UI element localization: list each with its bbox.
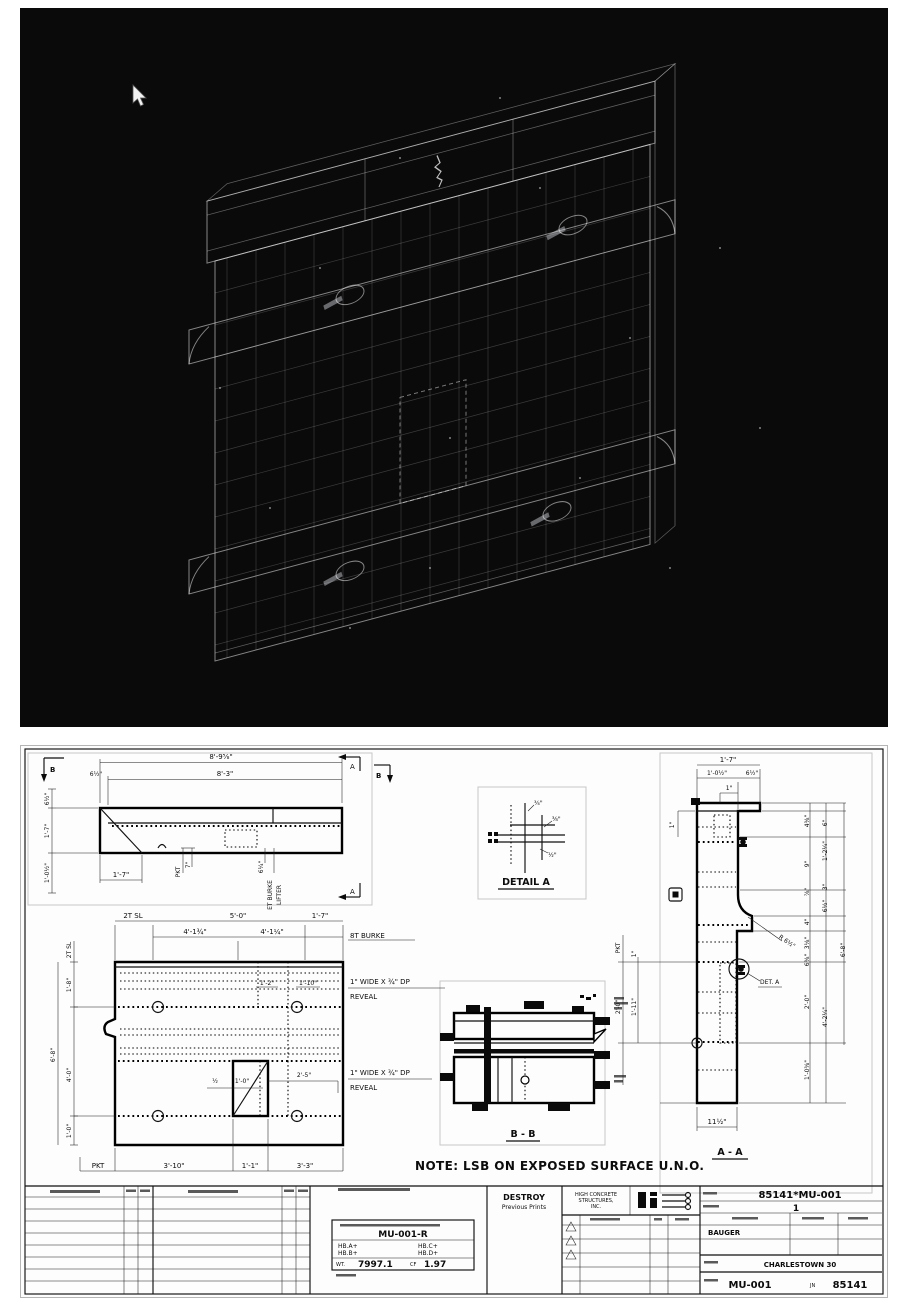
dim-label: ¾" [534,800,543,807]
dim-label: 4'-1¼" [260,928,283,936]
sheet-canvas: 8'-9⅝" 8'-3" 6½" 6½" 1'-7" 1'-0½" 1'-7" … [20,745,888,1298]
laterals-value: 1 [793,1204,799,1214]
hb-label: HB.D+ [418,1250,438,1257]
dim-label: 1'-7" [312,912,329,920]
svg-text:B: B [376,772,381,780]
dim-label: 1" [726,785,733,792]
lifter-label: ET BURKE [267,880,274,910]
dim-label: 6'-8" [50,1048,57,1062]
dim-label: 1'-2¼" [822,841,829,861]
dim-label: 8'-9⅝" [209,753,232,761]
dim-label: PKT [615,942,622,953]
job-number: 85141 [833,1280,868,1291]
viewport-background [20,8,888,727]
drawn-by: BAUGER [708,1229,741,1237]
dim-label: PKT [92,1162,105,1170]
dim-label: 1'-0½" [44,863,51,883]
reveal-label: 1" WIDE X ¾" DP [350,978,410,986]
weight-label: WT. [336,1262,345,1268]
dim-label: 6½" [90,771,103,778]
dim-label: 11½" [708,1118,727,1126]
view-title: B - B [510,1129,535,1140]
dim-label: 1'-7" [44,824,51,838]
dim-label: 4'-0" [66,1068,73,1082]
dim-label: 2'-0" [804,995,811,1009]
destroy-line1: DESTROY [503,1193,545,1202]
dim-label: 1'-7" [720,756,737,764]
dim-label: ½ [212,1078,218,1085]
project-name: CHARLESTOWN 30 [764,1261,837,1269]
view-title: A - A [717,1147,743,1158]
company-logo [638,1192,691,1210]
model-viewport[interactable] [20,8,888,727]
wireframe-canvas[interactable] [20,8,888,727]
company-line3: INC. [591,1204,602,1210]
svg-text:B: B [50,766,55,774]
dim-label: 3" [822,883,829,890]
dim-label: 5'-0" [230,912,247,920]
dim-label: 1" [669,821,676,828]
job-number-label: JN [809,1283,815,1289]
dim-label: 4'-1¾" [183,928,206,936]
dim-label: 6" [822,819,829,826]
dim-label: 3⅛" [804,937,811,950]
dim-label: 1'-1" [242,1162,259,1170]
detail-callout: DET. A [760,979,780,986]
full-mark: 85141*MU-001 [758,1190,841,1201]
svg-text:A: A [350,888,355,896]
dim-label: 1'-11" [631,998,638,1016]
dim-label: 2'-0" [615,1000,622,1014]
hb-label: HB.A+ [338,1243,358,1250]
hb-label: HB.C+ [418,1243,438,1250]
drawing-sheet: 8'-9⅝" 8'-3" 6½" 6½" 1'-7" 1'-0½" 1'-7" … [20,745,888,1298]
dim-label: 6¼" [258,861,265,874]
destroy-line2: Previous Prints [502,1204,546,1211]
dim-label: 1'-0⅜" [804,1060,811,1080]
cf-label: CF [410,1262,416,1268]
svg-text:A: A [350,763,355,771]
dim-label: 6½" [822,900,829,913]
dim-label: 1'-10" [299,980,317,987]
dim-label: 6'-8" [840,943,847,957]
dim-label: ⅜" [552,816,561,823]
reveal-label: 1" WIDE X ¾" DP [350,1069,410,1077]
dim-label: 6⅜" [804,954,811,967]
dim-label: ½" [548,852,557,859]
piece-mark: MU-001-R [378,1230,428,1240]
dim-label: ⅞" [804,887,811,896]
piece-mark-footer: MU-001 [728,1280,771,1291]
reveal-label: REVEAL [350,993,377,1001]
dim-label: 1'-2" [260,980,274,987]
dim-label: 3'-3" [297,1162,314,1170]
dim-label: 8'-3" [217,770,234,778]
dim-label: 1'-7" [113,871,130,879]
weight-value: 7997.1 [358,1260,393,1270]
dim-label: 1'-0" [235,1078,249,1085]
dim-label: 1'-8" [66,978,73,992]
dim-label: 7" [185,861,192,868]
view-title: DETAIL A [502,877,550,888]
dim-label: 3'-10" [163,1162,184,1170]
dim-label: 1'-0" [66,1124,73,1138]
hb-label: HB.B+ [338,1250,358,1257]
pocket-label: PKT [175,866,182,877]
dim-label: 1" [631,950,638,957]
reveal-label: REVEAL [350,1084,377,1092]
dim-label: 4" [804,918,811,925]
dim-label: 1'-0½" [707,770,727,777]
dim-label: 4⅜" [804,815,811,828]
general-note: NOTE: LSB ON EXPOSED SURFACE U.N.O. [415,1159,704,1173]
dim-label: 4'-2¼" [822,1007,829,1027]
lifter-label: LIFTER [276,885,283,905]
dim-label: 2T SL [66,941,73,958]
dim-label: 6½" [44,793,51,806]
dim-label: 2'-5" [297,1072,311,1079]
dim-label: 2T SL [123,912,142,920]
dim-label: 6½" [746,770,759,777]
dim-label: 9" [804,860,811,867]
cf-value: 1.97 [424,1260,446,1270]
callout-label: 8T BURKE [350,932,385,940]
